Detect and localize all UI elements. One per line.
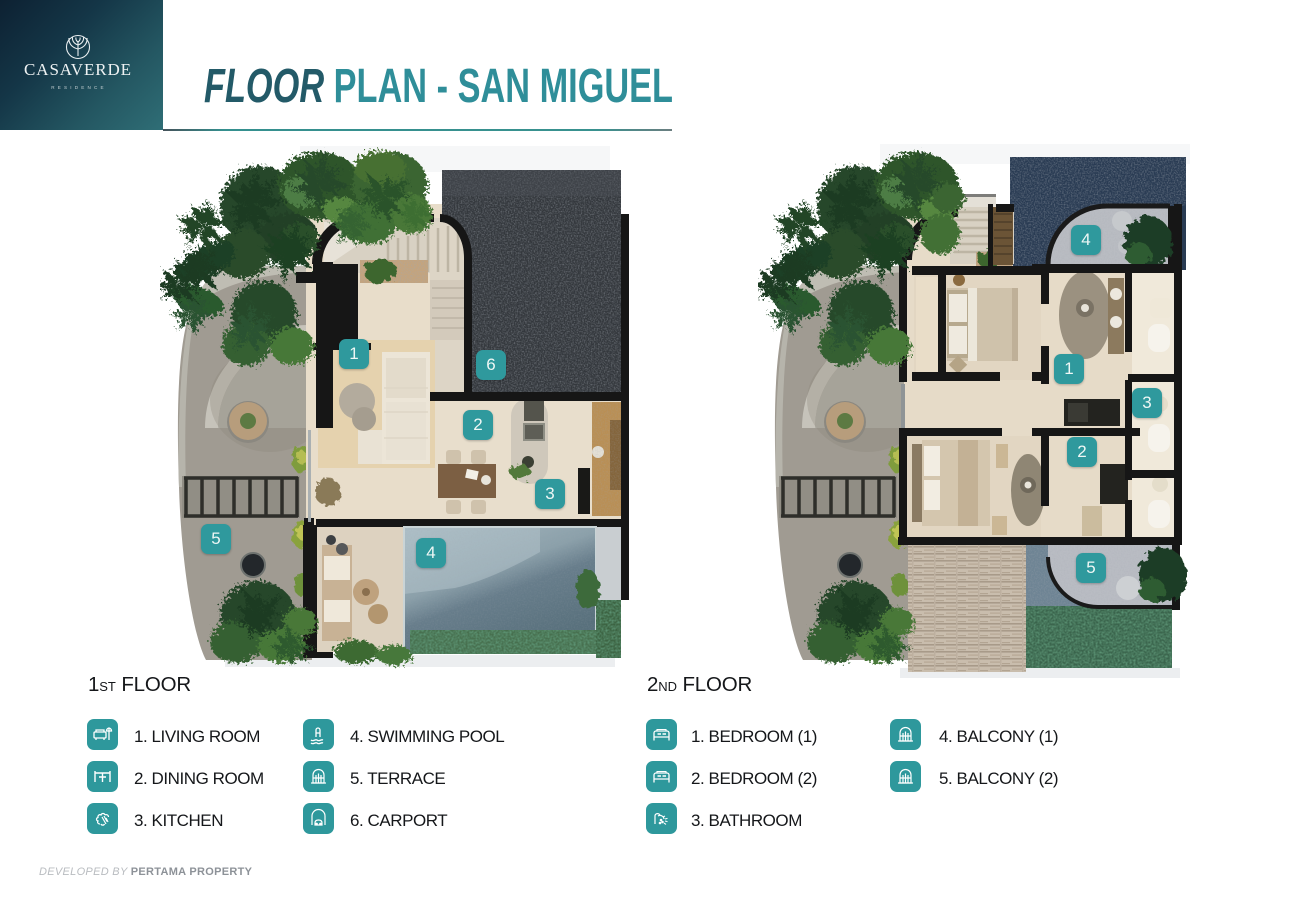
svg-text:CASAVERDE: CASAVERDE xyxy=(24,60,132,79)
svg-text:RESIDENCE: RESIDENCE xyxy=(51,85,107,90)
